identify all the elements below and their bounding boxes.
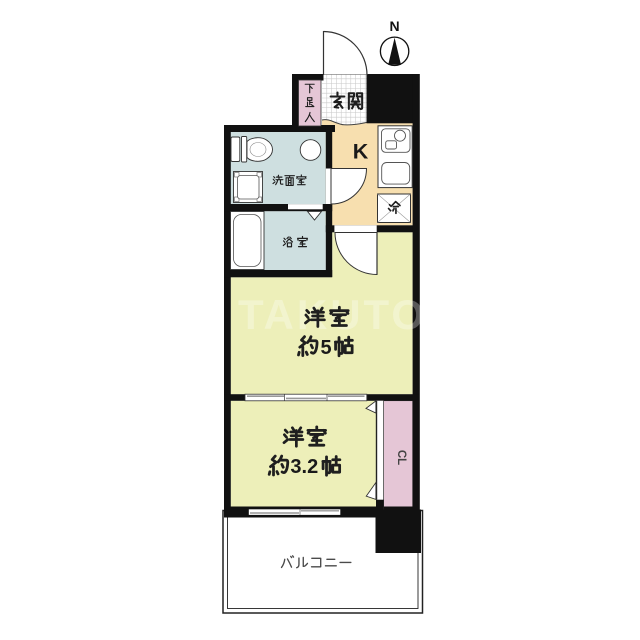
- svg-text:K: K: [353, 140, 369, 164]
- svg-text:CL: CL: [395, 450, 407, 465]
- svg-text:5: 5: [320, 337, 331, 359]
- svg-text:3.2: 3.2: [290, 456, 318, 478]
- svg-text:N: N: [390, 18, 400, 34]
